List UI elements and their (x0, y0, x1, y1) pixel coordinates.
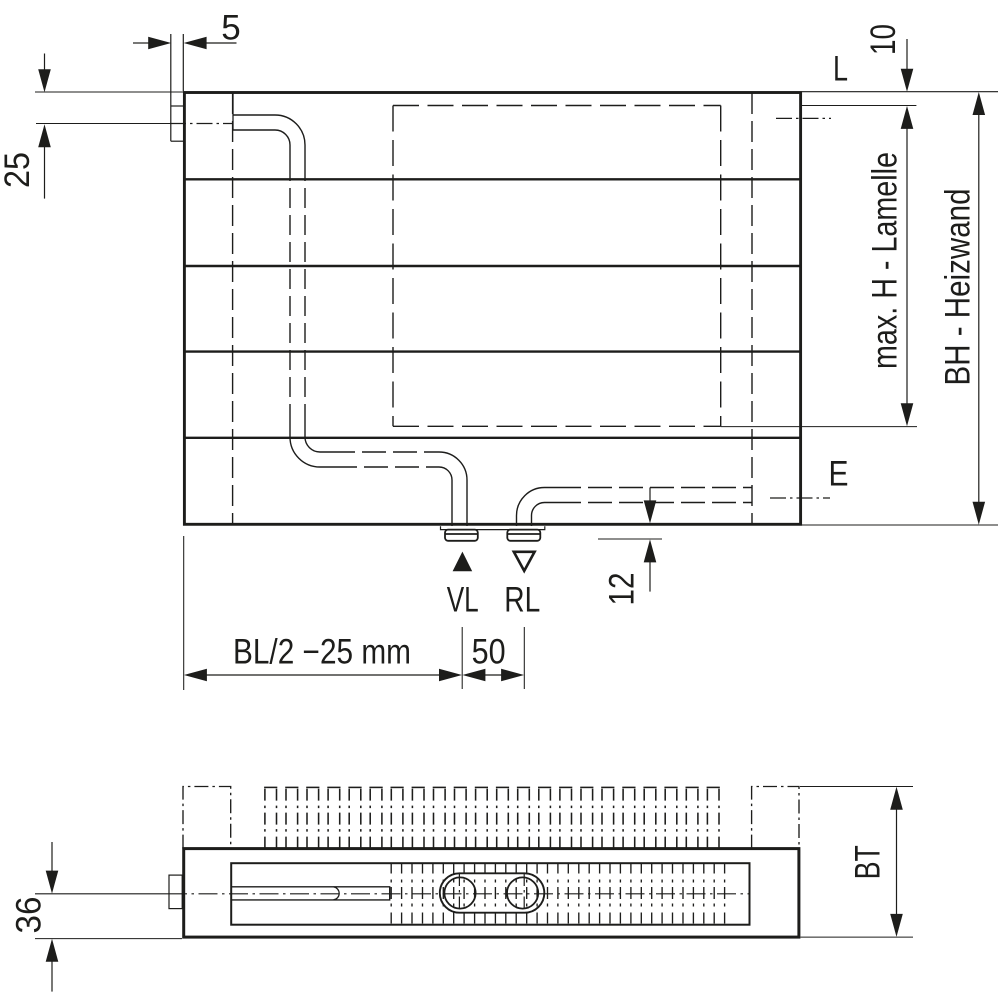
svg-text:BT: BT (849, 845, 888, 879)
svg-text:25: 25 (0, 152, 37, 188)
svg-text:12: 12 (603, 573, 642, 606)
svg-text:BH - Heizwand: BH - Heizwand (939, 189, 978, 386)
svg-text:E: E (829, 455, 849, 494)
svg-text:BL/2 −25 mm: BL/2 −25 mm (233, 633, 411, 672)
svg-text:L: L (833, 50, 848, 89)
svg-text:5: 5 (221, 9, 240, 48)
svg-text:VL: VL (447, 581, 479, 620)
svg-text:RL: RL (504, 581, 540, 620)
svg-text:50: 50 (472, 633, 506, 672)
svg-text:10: 10 (864, 24, 903, 55)
svg-text:max. H - Lamelle: max. H - Lamelle (866, 152, 905, 369)
svg-text:36: 36 (10, 897, 49, 934)
